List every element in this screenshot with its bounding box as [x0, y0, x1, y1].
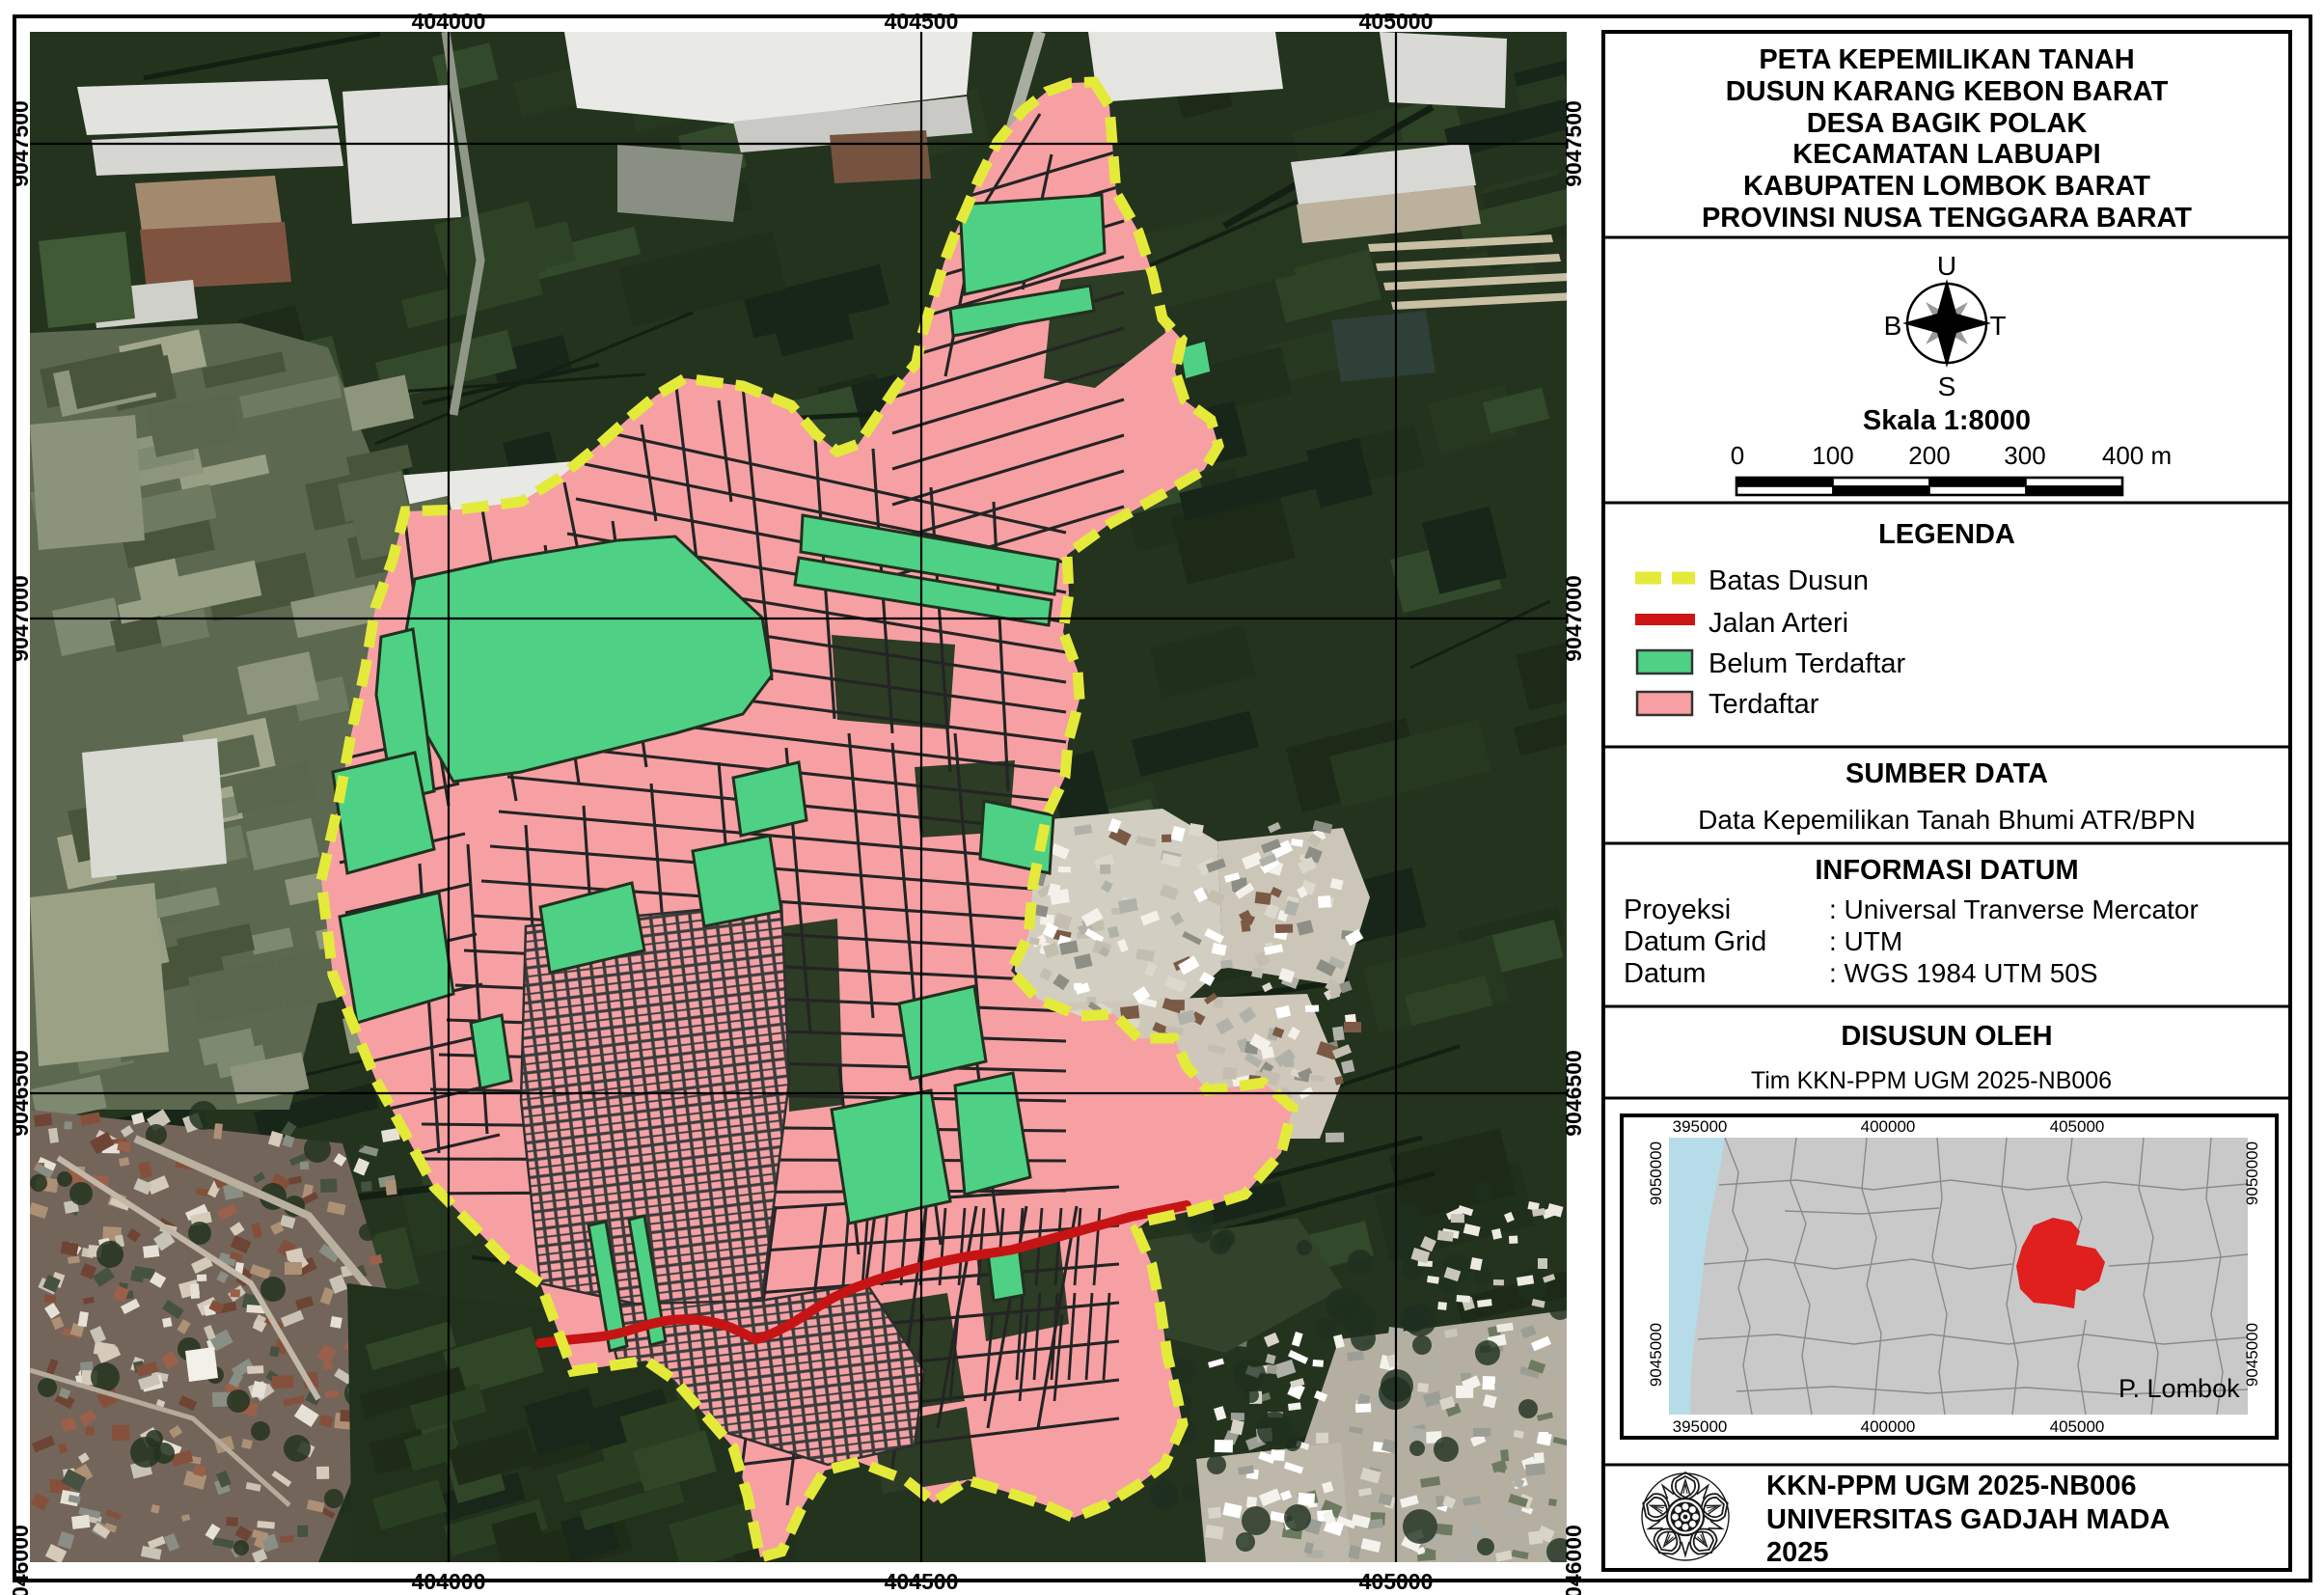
- svg-text:2025: 2025: [1766, 1537, 1829, 1568]
- svg-text:404500: 404500: [885, 9, 959, 34]
- svg-text:Skala 1:8000: Skala 1:8000: [1863, 405, 2031, 436]
- svg-text:Jalan Arteri: Jalan Arteri: [1709, 608, 1848, 639]
- svg-text:P. Lombok: P. Lombok: [2119, 1374, 2240, 1403]
- svg-text:Terdaftar: Terdaftar: [1709, 689, 1819, 720]
- svg-text:405000: 405000: [2050, 1117, 2105, 1136]
- svg-text:DUSUN KARANG KEBON BARAT: DUSUN KARANG KEBON BARAT: [1726, 76, 2169, 107]
- svg-text:Proyeksi: Proyeksi: [1624, 894, 1731, 925]
- svg-text:404500: 404500: [885, 1569, 959, 1594]
- svg-text:9047500: 9047500: [8, 100, 33, 187]
- svg-text:100: 100: [1812, 441, 1853, 470]
- svg-text:400 m: 400 m: [2102, 441, 2172, 470]
- svg-text:9045000: 9045000: [2243, 1323, 2261, 1387]
- svg-text:KABUPATEN LOMBOK BARAT: KABUPATEN LOMBOK BARAT: [1743, 171, 2150, 202]
- svg-text:: WGS 1984 UTM 50S: : WGS 1984 UTM 50S: [1829, 958, 2098, 988]
- svg-text:9050000: 9050000: [1647, 1141, 1665, 1205]
- svg-text:400000: 400000: [1861, 1417, 1916, 1436]
- svg-text:U: U: [1937, 251, 1956, 281]
- svg-text:PETA KEPEMILIKAN TANAH: PETA KEPEMILIKAN TANAH: [1759, 44, 2134, 75]
- svg-text:Datum: Datum: [1624, 958, 1706, 989]
- svg-text:: UTM: : UTM: [1829, 926, 1902, 956]
- svg-text:B: B: [1884, 311, 1902, 341]
- svg-text:KKN-PPM UGM 2025-NB006: KKN-PPM UGM 2025-NB006: [1766, 1471, 2137, 1501]
- svg-text:395000: 395000: [1673, 1417, 1728, 1436]
- svg-text:0: 0: [1731, 441, 1744, 470]
- svg-text:Batas Dusun: Batas Dusun: [1709, 565, 1869, 596]
- svg-text:LEGENDA: LEGENDA: [1878, 519, 2015, 550]
- svg-text:9046000: 9046000: [8, 1525, 33, 1595]
- svg-text:9047500: 9047500: [1561, 100, 1586, 187]
- svg-text:S: S: [1938, 371, 1956, 401]
- svg-text:404000: 404000: [412, 9, 486, 34]
- svg-text:DESA BAGIK POLAK: DESA BAGIK POLAK: [1807, 108, 2088, 139]
- svg-text:KECAMATAN LABUAPI: KECAMATAN LABUAPI: [1792, 139, 2101, 170]
- svg-text:405000: 405000: [1359, 9, 1434, 34]
- svg-text:300: 300: [2004, 441, 2045, 470]
- svg-text:Tim KKN-PPM UGM 2025-NB006: Tim KKN-PPM UGM 2025-NB006: [1751, 1067, 2112, 1094]
- svg-text:404000: 404000: [412, 1569, 486, 1594]
- svg-text:9047000: 9047000: [1561, 575, 1586, 662]
- svg-text:9046500: 9046500: [8, 1050, 33, 1137]
- svg-text:405000: 405000: [2050, 1417, 2105, 1436]
- svg-text:Data Kepemilikan Tanah Bhumi A: Data Kepemilikan Tanah Bhumi ATR/BPN: [1698, 805, 2196, 835]
- svg-text:395000: 395000: [1673, 1117, 1728, 1136]
- svg-text:9050000: 9050000: [2243, 1141, 2261, 1205]
- svg-text:Belum Terdaftar: Belum Terdaftar: [1709, 648, 1906, 679]
- svg-text:DISUSUN OLEH: DISUSUN OLEH: [1841, 1021, 2052, 1052]
- svg-text:: Universal Tranverse Mercator: : Universal Tranverse Mercator: [1829, 894, 2199, 924]
- svg-text:UNIVERSITAS GADJAH MADA: UNIVERSITAS GADJAH MADA: [1766, 1504, 2170, 1535]
- svg-text:200: 200: [1908, 441, 1950, 470]
- svg-text:400000: 400000: [1861, 1117, 1916, 1136]
- svg-text:9045000: 9045000: [1647, 1323, 1665, 1387]
- svg-text:PROVINSI NUSA TENGGARA BARAT: PROVINSI NUSA TENGGARA BARAT: [1702, 203, 2192, 234]
- svg-text:405000: 405000: [1359, 1569, 1434, 1594]
- svg-text:T: T: [1989, 311, 2006, 341]
- svg-text:Datum Grid: Datum Grid: [1624, 926, 1766, 957]
- svg-text:INFORMASI DATUM: INFORMASI DATUM: [1815, 855, 2078, 886]
- svg-text:SUMBER DATA: SUMBER DATA: [1846, 758, 2048, 789]
- svg-text:9046500: 9046500: [1561, 1050, 1586, 1137]
- svg-text:9046000: 9046000: [1561, 1525, 1586, 1595]
- svg-text:9047000: 9047000: [8, 575, 33, 662]
